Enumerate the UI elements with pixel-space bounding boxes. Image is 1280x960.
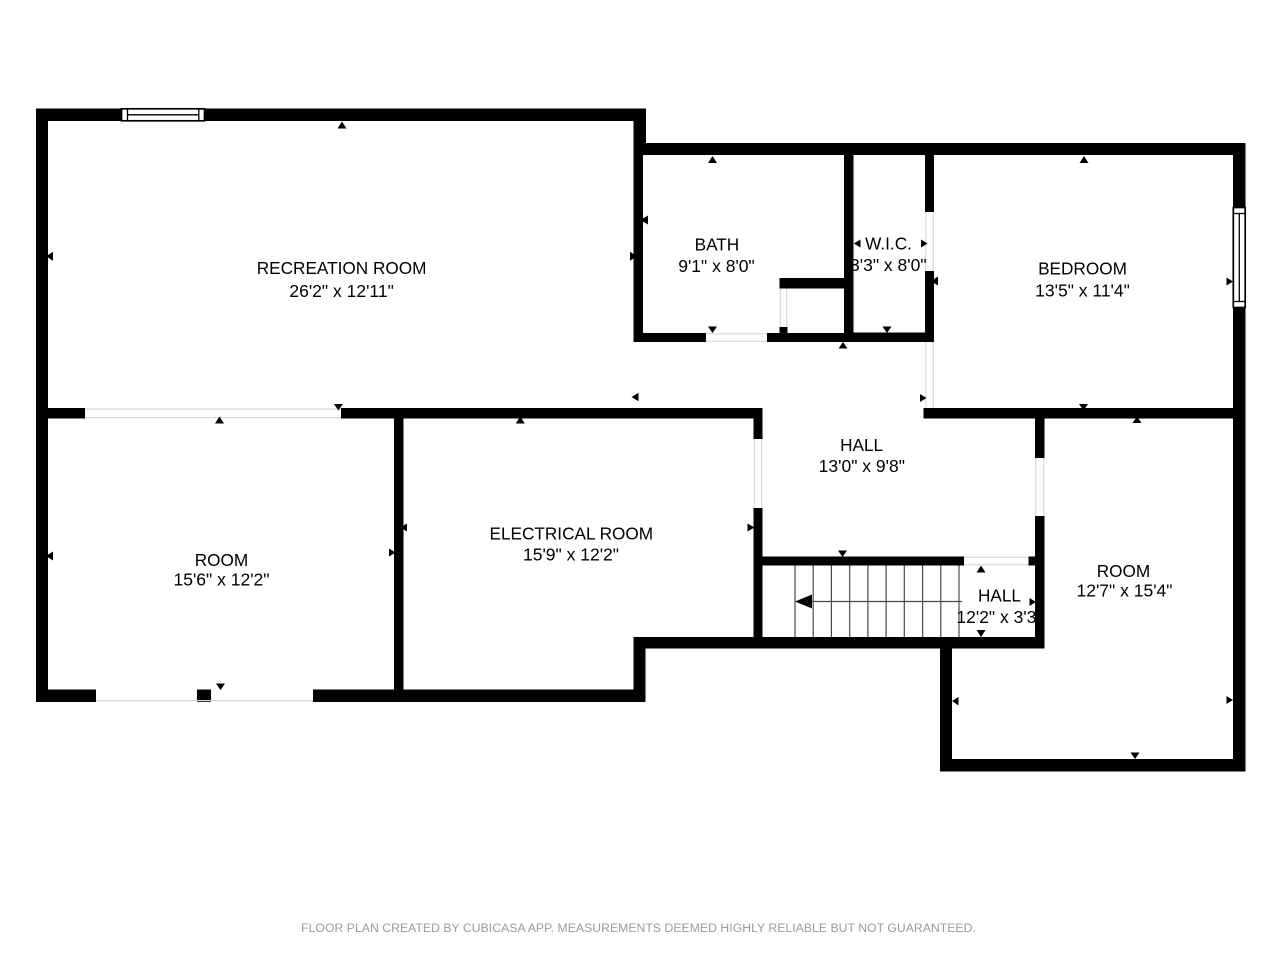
svg-text:13'5" x 11'4": 13'5" x 11'4"	[1035, 281, 1130, 301]
svg-text:15'9" x 12'2": 15'9" x 12'2"	[523, 545, 619, 565]
svg-text:BEDROOM: BEDROOM	[1038, 259, 1127, 279]
svg-text:26'2" x 12'11": 26'2" x 12'11"	[289, 281, 393, 301]
svg-text:12'7" x 15'4": 12'7" x 15'4"	[1077, 581, 1173, 601]
svg-text:ELECTRICAL ROOM: ELECTRICAL ROOM	[489, 524, 653, 544]
svg-text:3'3" x 8'0": 3'3" x 8'0"	[850, 255, 927, 275]
svg-text:W.I.C.: W.I.C.	[865, 234, 912, 254]
svg-text:FLOOR PLAN CREATED BY CUBICASA: FLOOR PLAN CREATED BY CUBICASA APP. MEAS…	[301, 921, 976, 935]
svg-text:ROOM: ROOM	[1097, 561, 1150, 581]
svg-text:13'0" x 9'8": 13'0" x 9'8"	[819, 456, 905, 476]
svg-text:HALL: HALL	[840, 435, 883, 455]
svg-text:15'6" x 12'2": 15'6" x 12'2"	[174, 570, 270, 590]
svg-text:12'2" x 3'3": 12'2" x 3'3"	[956, 607, 1042, 627]
svg-text:RECREATION ROOM: RECREATION ROOM	[257, 258, 427, 278]
svg-text:9'1" x 8'0": 9'1" x 8'0"	[678, 256, 755, 276]
svg-text:ROOM: ROOM	[195, 550, 248, 570]
svg-text:BATH: BATH	[695, 235, 740, 255]
svg-text:HALL: HALL	[978, 586, 1021, 606]
